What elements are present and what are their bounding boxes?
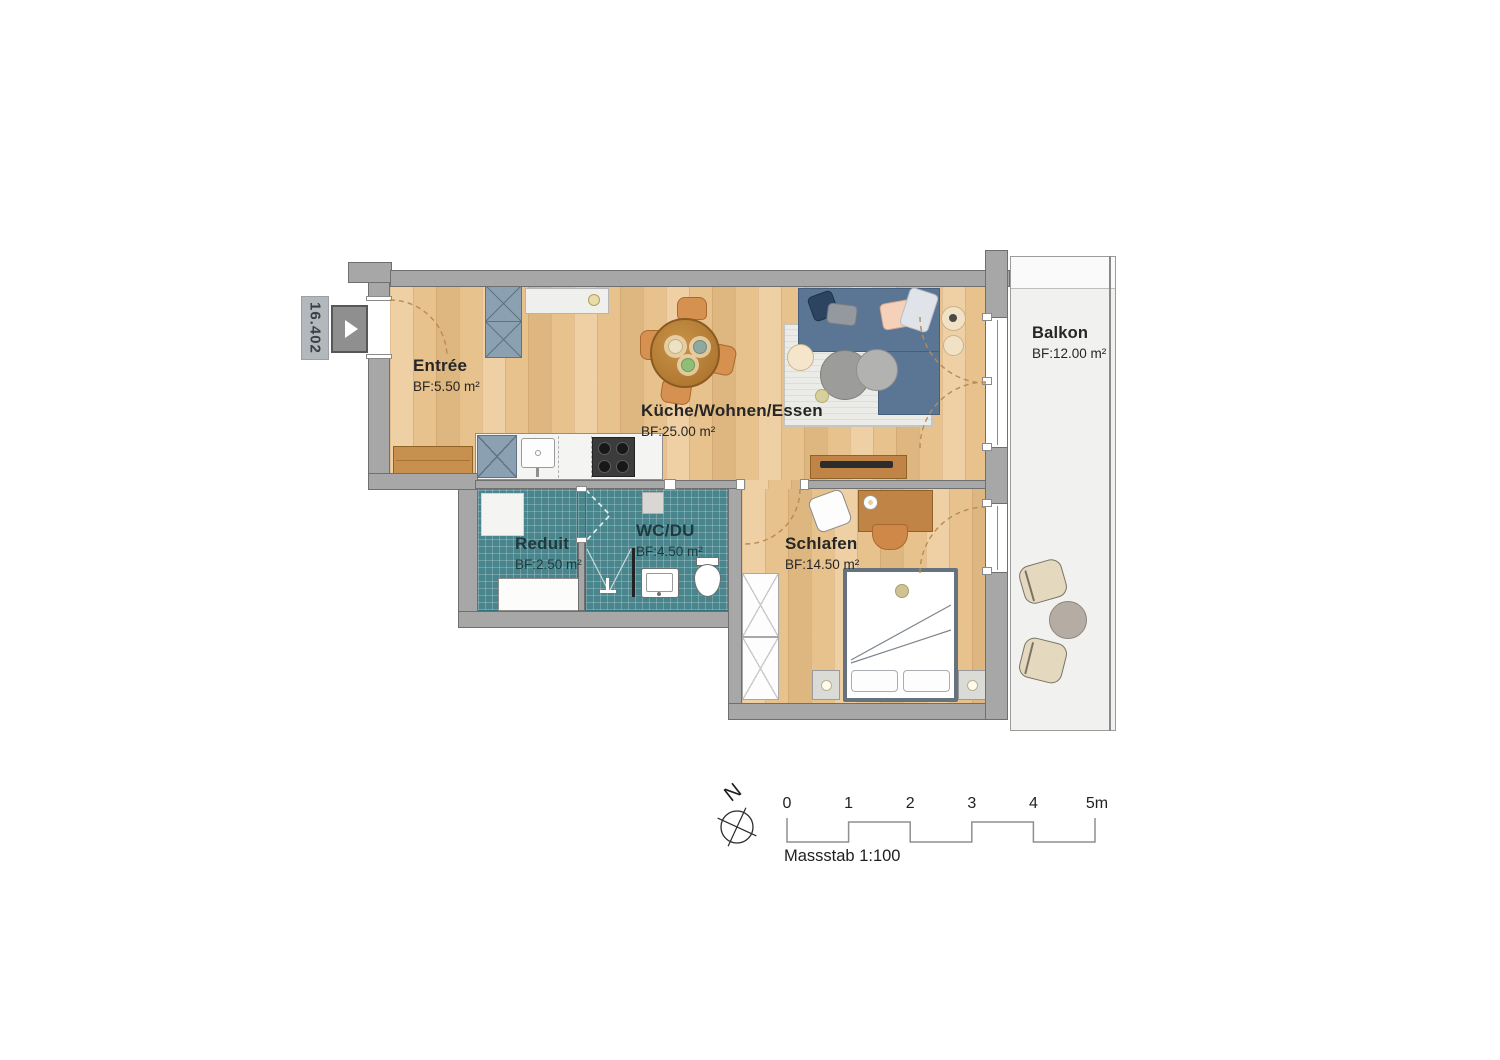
plate — [668, 339, 683, 354]
window-jamb — [982, 377, 992, 385]
scale-caption: Massstab 1:100 — [784, 847, 900, 866]
bed-pillow-left — [851, 670, 898, 692]
wall-bottom-bedroom — [728, 703, 990, 720]
wall-right-lower — [985, 572, 1008, 720]
dishwasher-dashed — [558, 436, 592, 478]
kitchen-wall-jamb — [664, 479, 676, 490]
nightstand-lamp — [967, 680, 978, 691]
unit-number-label: 16.402 — [301, 296, 329, 360]
wc-sink — [641, 568, 679, 598]
wall-right-upper — [985, 250, 1008, 318]
burner — [616, 442, 629, 455]
counter-cabinet — [477, 435, 517, 478]
desk-lamp — [863, 495, 878, 510]
sofa-pillow-gray — [826, 302, 858, 326]
burner — [598, 442, 611, 455]
burner — [616, 460, 629, 473]
wall-left-lower — [368, 356, 390, 474]
wc-vent-box — [642, 492, 664, 514]
wall-column-wc-bedroom — [728, 488, 742, 720]
wc-door-jamb-bottom — [576, 537, 587, 543]
window-jamb — [982, 313, 992, 321]
kitchen-tall-cabinet-upper — [485, 285, 522, 322]
rug-dot — [815, 389, 829, 403]
wc-sink-basin — [646, 573, 673, 592]
wall-bottom-bathroom — [458, 611, 742, 628]
wc-door-jamb-top — [576, 486, 587, 492]
lamp-bulb — [868, 500, 873, 505]
north-compass: N — [712, 780, 776, 854]
wc-folding-door — [584, 488, 614, 544]
bed — [843, 568, 958, 702]
chair-backrest-line — [1024, 642, 1034, 675]
shower-faucet — [606, 578, 609, 590]
wardrobe-upper — [742, 573, 779, 637]
bedroom-door-jamb-left — [736, 479, 745, 490]
wall-top-notch — [348, 262, 392, 283]
north-label: N — [720, 780, 746, 806]
scale-tick: 2 — [906, 795, 915, 812]
pouf-small — [856, 349, 898, 391]
scale-tick: 3 — [967, 795, 976, 812]
chair-backrest-line — [1024, 570, 1035, 601]
entry-door-symbol — [331, 305, 368, 353]
floor-plan: 16.402 Entrée BF:5.50 m² Küche/Wohnen/Es… — [0, 0, 1500, 1060]
tv — [820, 461, 893, 468]
dining-chair-north — [677, 297, 707, 320]
nightstand-lamp — [821, 680, 832, 691]
window-jamb — [982, 567, 992, 575]
window-jamb — [982, 499, 992, 507]
wall-top — [390, 270, 1010, 287]
wall-kitchen-bath — [475, 480, 745, 489]
shower — [586, 548, 632, 597]
scale-tick: 5m — [1086, 795, 1108, 812]
plant — [949, 314, 957, 322]
shower-drain — [600, 590, 616, 593]
wall-reduit-wc-divider — [578, 540, 585, 611]
bedroom-door-jamb-right — [800, 479, 809, 490]
burner — [598, 460, 611, 473]
wall-right-mid — [985, 447, 1008, 504]
bed-pillow-right — [903, 670, 950, 692]
shower-partition — [632, 548, 635, 597]
stove — [592, 437, 635, 477]
side-table — [943, 335, 964, 356]
glass-line — [997, 320, 998, 445]
dining-table — [650, 318, 720, 388]
kitchen-tall-cabinet-lower — [485, 321, 522, 358]
plate — [693, 340, 707, 354]
entry-door-jamb-top — [366, 296, 392, 301]
washing-machine — [481, 493, 524, 536]
entree-bench — [393, 446, 473, 474]
sink-faucet — [536, 468, 539, 477]
kitchen-sink — [521, 438, 555, 468]
reduit-shelf — [498, 578, 580, 611]
balcony-table — [1049, 601, 1087, 639]
entry-arrow-icon — [345, 320, 358, 338]
balcony-railing-line — [1109, 256, 1111, 731]
plate — [681, 358, 695, 372]
scale-tick: 0 — [783, 795, 792, 812]
bench-seam — [396, 460, 470, 461]
nightstand-left — [812, 670, 840, 700]
coffee-table — [787, 344, 814, 371]
scale-tick: 1 — [844, 795, 853, 812]
nightstand-right — [958, 670, 986, 700]
window-jamb — [982, 443, 992, 451]
bed-dot — [895, 584, 909, 598]
balcony-neighbour-strip — [1011, 257, 1115, 289]
wall-left-bathroom — [458, 489, 478, 613]
bowl — [588, 294, 600, 306]
wc-sink-tap — [657, 592, 661, 596]
scale-tick: 4 — [1029, 795, 1038, 812]
wall-step-entree — [368, 473, 478, 490]
sink-drain — [535, 450, 541, 456]
wall-living-bedroom — [800, 480, 986, 489]
side-table-plant — [941, 306, 966, 331]
wardrobe-lower — [742, 637, 779, 700]
entry-door-jamb-bottom — [366, 354, 392, 359]
glass-line — [997, 506, 998, 570]
bedroom-balcony-door — [985, 503, 1008, 573]
